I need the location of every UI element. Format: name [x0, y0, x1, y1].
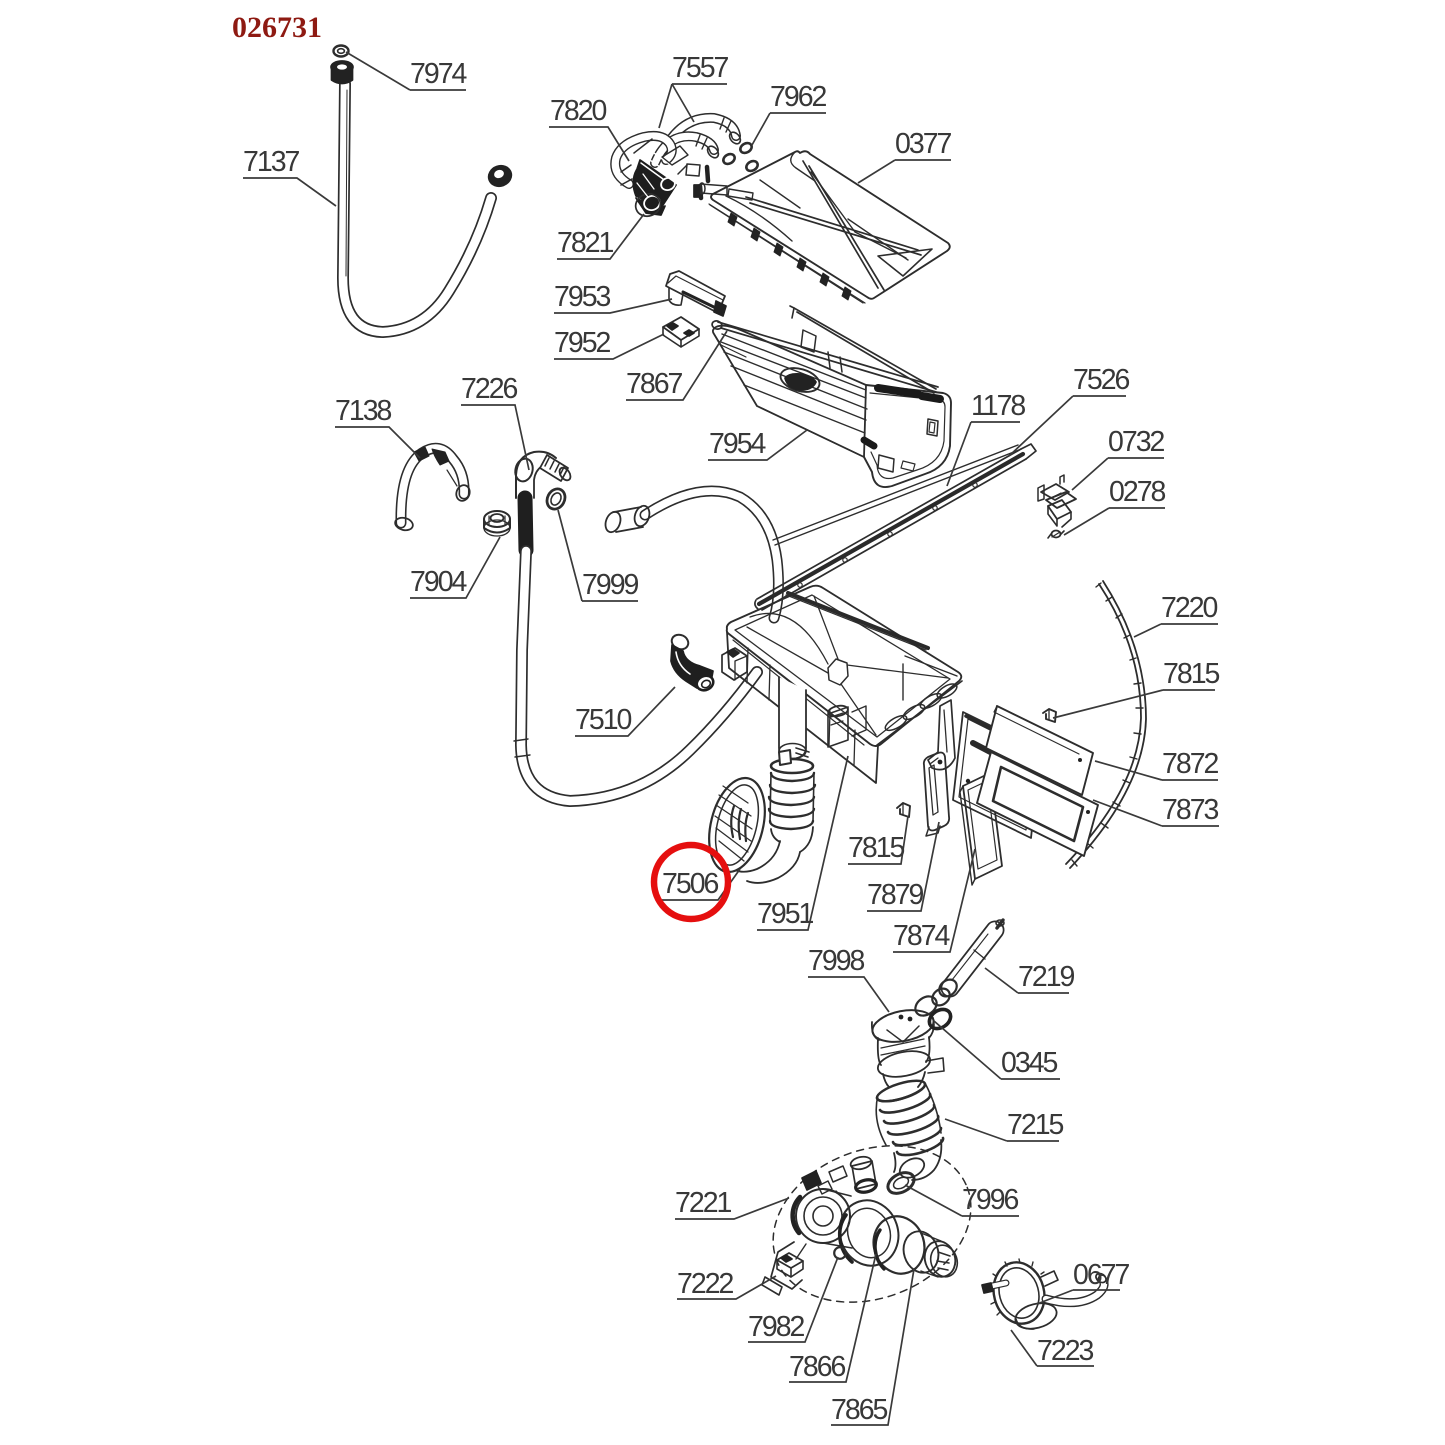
svg-text:7815: 7815	[1163, 658, 1220, 690]
svg-text:7954: 7954	[709, 428, 767, 460]
svg-text:7951: 7951	[757, 898, 814, 930]
svg-text:7952: 7952	[554, 327, 611, 359]
svg-text:7222: 7222	[677, 1268, 734, 1300]
svg-text:7815: 7815	[848, 832, 905, 864]
svg-text:7223: 7223	[1037, 1335, 1094, 1367]
svg-text:7219: 7219	[1018, 961, 1075, 993]
svg-text:7221: 7221	[675, 1187, 732, 1219]
svg-text:7220: 7220	[1161, 592, 1218, 624]
svg-text:7999: 7999	[582, 569, 639, 601]
svg-text:0732: 0732	[1108, 426, 1165, 458]
svg-text:0345: 0345	[1001, 1047, 1058, 1079]
svg-text:7510: 7510	[575, 704, 632, 736]
svg-text:7526: 7526	[1073, 364, 1130, 396]
svg-text:7215: 7215	[1007, 1109, 1064, 1141]
svg-text:7137: 7137	[243, 146, 300, 178]
svg-text:026731: 026731	[232, 11, 322, 44]
svg-text:7872: 7872	[1162, 748, 1219, 780]
svg-text:7820: 7820	[550, 95, 607, 127]
svg-text:7904: 7904	[410, 566, 468, 598]
svg-text:7953: 7953	[554, 281, 611, 313]
svg-text:7557: 7557	[672, 52, 729, 84]
svg-text:7226: 7226	[461, 373, 518, 405]
svg-text:7874: 7874	[893, 920, 951, 952]
svg-text:7998: 7998	[808, 945, 865, 977]
svg-text:7996: 7996	[962, 1184, 1019, 1216]
svg-text:7873: 7873	[1162, 794, 1219, 826]
svg-text:7138: 7138	[335, 395, 392, 427]
svg-text:0278: 0278	[1109, 476, 1166, 508]
svg-text:7506: 7506	[662, 868, 719, 900]
svg-text:7974: 7974	[410, 58, 468, 90]
svg-text:7962: 7962	[770, 81, 827, 113]
svg-text:7867: 7867	[626, 368, 683, 400]
svg-text:7982: 7982	[748, 1311, 805, 1343]
svg-text:0377: 0377	[895, 128, 952, 160]
svg-text:7865: 7865	[831, 1394, 888, 1426]
svg-text:1178: 1178	[971, 390, 1025, 422]
svg-text:7821: 7821	[557, 227, 614, 259]
svg-text:0677: 0677	[1073, 1259, 1130, 1291]
svg-text:7879: 7879	[867, 879, 924, 911]
svg-text:7866: 7866	[789, 1351, 846, 1383]
